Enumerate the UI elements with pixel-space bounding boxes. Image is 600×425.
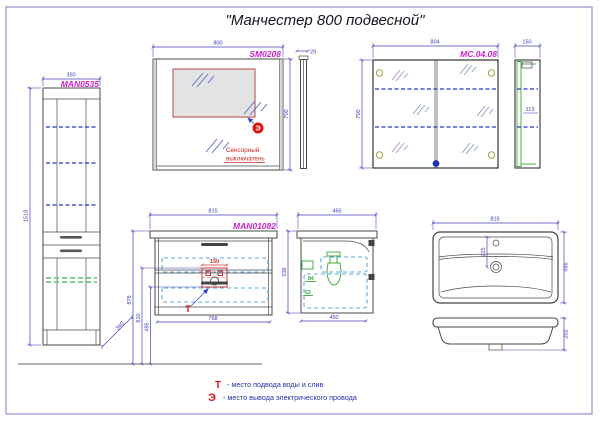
technical-drawing: "Манчестер 800 подвесной" 350 MAN0535 15… — [0, 0, 600, 425]
dim-side-bottom: 450 — [329, 315, 338, 321]
mirror-label: SM0208 — [249, 49, 281, 59]
dim-mirror-width: 800 — [213, 41, 222, 47]
glass-hatch-icon — [462, 143, 478, 154]
dim-mirror-thickness: 29 — [310, 50, 316, 56]
dim-height-top: 878 — [127, 295, 133, 304]
dim-height-drain: 495 — [145, 322, 151, 331]
drawer-handle — [60, 236, 82, 239]
glass-hatch-icon — [392, 70, 408, 81]
glass-hatch-icon — [392, 142, 408, 153]
siphon-flange — [327, 252, 340, 256]
glass-hatch-icon — [460, 64, 476, 75]
wall-bracket — [369, 274, 375, 280]
wall-bracket — [522, 62, 532, 68]
dim-mc-height: 700 — [356, 109, 362, 118]
drawing-page: "Манчестер 800 подвесной" 350 MAN0535 15… — [0, 0, 600, 425]
drawer-box-dashed — [162, 288, 268, 302]
sensor-switch-note-line2: выключатель — [226, 156, 265, 163]
electric-outlet-marker-letter: Э — [255, 124, 261, 133]
glass-hatch-icon — [477, 106, 493, 117]
drain-stub — [489, 344, 502, 350]
mirror-edge-strip — [280, 59, 284, 170]
dim-mc-width: 804 — [430, 40, 439, 46]
legend-e-symbol: Э — [208, 392, 216, 404]
dim-sink-depth: 465 — [564, 262, 570, 271]
dim-drain-offset: 215 — [481, 247, 487, 256]
mirror-edge-strip — [153, 59, 157, 170]
glass-hatch-icon — [413, 104, 429, 115]
side-panel-green — [517, 62, 521, 167]
drawer-handle — [60, 250, 82, 253]
water-inlet — [302, 261, 313, 269]
page-border — [6, 7, 592, 414]
hinge-icon — [488, 152, 494, 158]
drawing-title: "Манчестер 800 подвесной" — [226, 12, 426, 29]
wall-bracket — [369, 240, 375, 246]
legend: Т - место подвода воды и слив Э - место … — [208, 380, 357, 404]
dim-sink-height: 202 — [564, 329, 570, 338]
faucet-hole — [493, 240, 499, 246]
dim-vanity-width: 815 — [208, 209, 217, 215]
vanity-side-view: 465 84 53 536 450 — [282, 209, 377, 322]
dim-cabinet-width: 350 — [66, 73, 75, 79]
dim-height-supply: 610 — [136, 313, 142, 322]
mirror-cabinet-front-view: 804 MC.04.08 700 — [356, 40, 498, 169]
hinge-icon — [376, 70, 382, 76]
drain-hole — [491, 262, 502, 273]
dim-side-height: 536 — [282, 267, 288, 276]
tall-cabinet-front-view: 350 MAN0535 1518 340 — [24, 73, 133, 348]
water-supply-marker-letter: Т — [185, 304, 191, 314]
drawer-handle — [201, 282, 228, 285]
legend-t-text: - место подвода воды и слив — [227, 380, 324, 389]
hinge-icon — [488, 70, 494, 76]
legend-t-symbol: Т — [215, 380, 221, 391]
drawer-handle — [201, 243, 228, 246]
dim-mc-depth: 150 — [522, 40, 531, 46]
hinge-icon — [376, 152, 382, 158]
dim-side-depth: 465 — [332, 209, 341, 215]
door-knob — [433, 160, 440, 167]
sink-front-view: 202 — [433, 318, 570, 350]
dim-sink-width: 815 — [490, 217, 499, 223]
mirror-side-view: 29 — [297, 50, 316, 169]
vanity-label: MAN01082 — [233, 221, 276, 231]
mirror-cabinet-side-view: 150 113 — [515, 40, 540, 169]
dim-mirror-height: 700 — [284, 109, 290, 118]
sensor-switch-note-line1: Сенсорный — [226, 146, 260, 154]
vanity-front-view: 815 MAN01082 150 Т 768 878 610 495 — [127, 209, 277, 365]
legend-e-text: - место вывода электрического провода — [223, 393, 357, 402]
sink-top-view: 815 215 465 — [433, 217, 570, 304]
dim-siphon-cutout: 150 — [210, 259, 219, 265]
dim-cabinet-depth: 340 — [115, 321, 126, 332]
mirror-cabinet-label: MC.04.08 — [460, 49, 497, 59]
mirror-front-view: 800 SM0208 Э Сенсорный выключатель 700 — [153, 41, 293, 171]
dim-cabinet-height: 1518 — [24, 210, 30, 222]
dim-vanity-inner-width: 768 — [208, 316, 217, 322]
dim-mc-shelf-depth: 113 — [526, 107, 535, 113]
